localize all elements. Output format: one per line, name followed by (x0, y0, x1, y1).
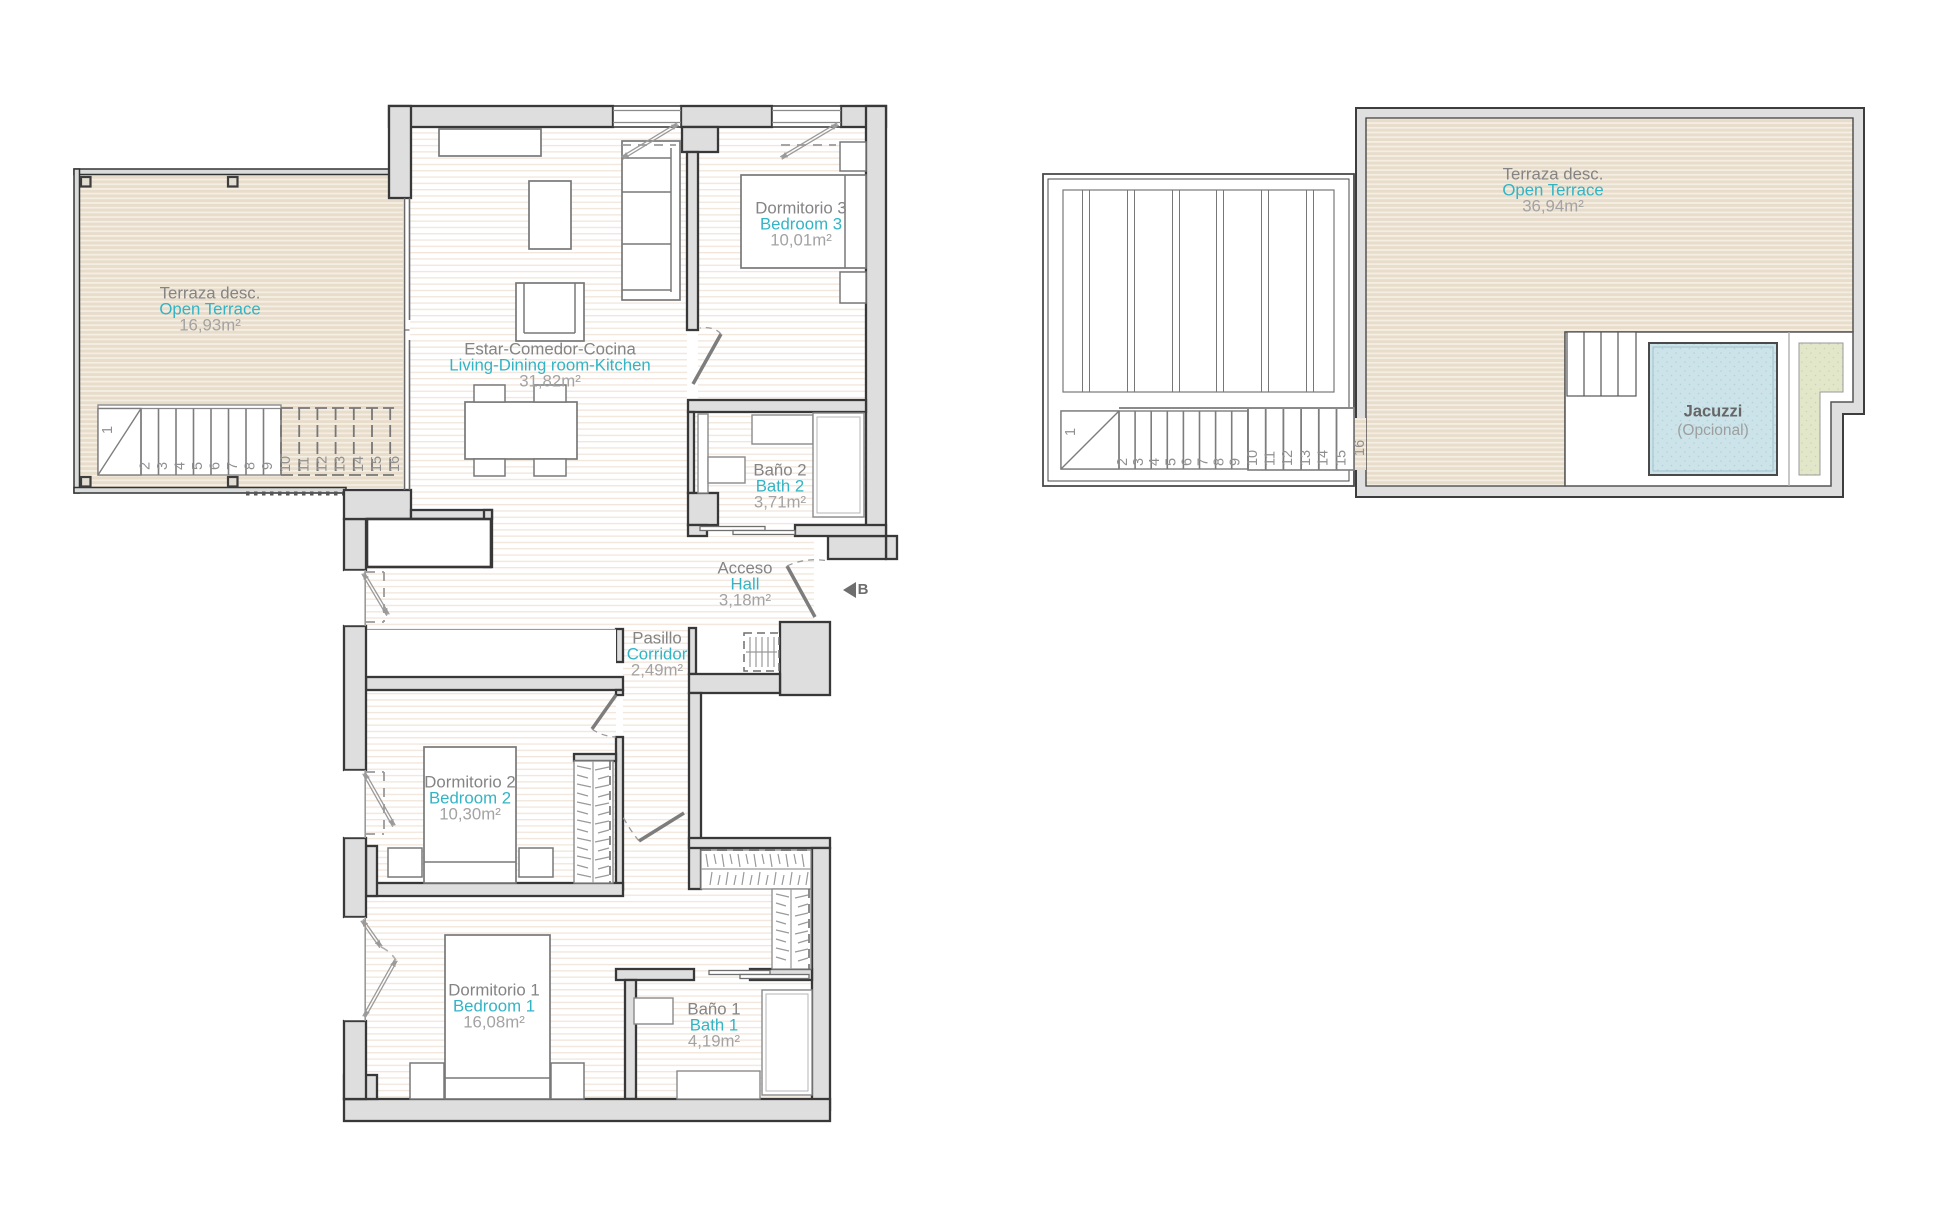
svg-text:13: 13 (1298, 450, 1314, 466)
svg-text:2,49m²: 2,49m² (631, 660, 684, 679)
svg-text:3: 3 (1131, 458, 1147, 466)
svg-text:15: 15 (1333, 450, 1349, 466)
svg-text:4: 4 (173, 462, 189, 470)
svg-text:14: 14 (351, 456, 367, 472)
svg-text:12: 12 (315, 456, 331, 472)
svg-text:2: 2 (1115, 458, 1131, 466)
svg-text:12: 12 (1280, 450, 1296, 466)
svg-text:15: 15 (369, 456, 385, 472)
svg-text:B: B (858, 581, 869, 598)
svg-text:10: 10 (1245, 450, 1261, 466)
svg-text:2: 2 (138, 462, 154, 470)
svg-text:31,82m²: 31,82m² (519, 371, 581, 390)
svg-text:5: 5 (190, 462, 206, 470)
svg-text:10,30m²: 10,30m² (439, 804, 501, 823)
svg-text:10,01m²: 10,01m² (770, 230, 832, 249)
svg-text:14: 14 (1316, 450, 1332, 466)
svg-text:10: 10 (278, 456, 294, 472)
svg-text:16: 16 (387, 456, 403, 472)
svg-text:5: 5 (1163, 458, 1179, 466)
svg-text:(Opcional): (Opcional) (1677, 422, 1749, 439)
svg-text:3,71m²: 3,71m² (754, 492, 807, 511)
svg-text:16,08m²: 16,08m² (463, 1012, 525, 1031)
svg-text:1: 1 (100, 426, 116, 434)
svg-text:9: 9 (260, 462, 276, 470)
svg-text:Jacuzzi: Jacuzzi (1684, 402, 1743, 420)
svg-text:6: 6 (208, 462, 224, 470)
svg-text:4: 4 (1147, 458, 1163, 466)
svg-text:9: 9 (1228, 458, 1244, 466)
svg-text:13: 13 (333, 456, 349, 472)
svg-text:3: 3 (155, 462, 171, 470)
svg-text:6: 6 (1179, 458, 1195, 466)
svg-text:1: 1 (1063, 428, 1079, 436)
svg-text:11: 11 (1263, 451, 1279, 466)
svg-text:16,93m²: 16,93m² (179, 315, 241, 334)
svg-text:36,94m²: 36,94m² (1522, 196, 1584, 215)
svg-text:11: 11 (296, 457, 312, 472)
svg-text:8: 8 (243, 462, 259, 470)
svg-text:3,18m²: 3,18m² (719, 590, 772, 609)
svg-text:7: 7 (1196, 458, 1212, 466)
svg-text:4,19m²: 4,19m² (688, 1031, 741, 1050)
svg-text:16: 16 (1352, 440, 1368, 456)
svg-text:7: 7 (225, 462, 241, 470)
svg-text:8: 8 (1212, 458, 1228, 466)
